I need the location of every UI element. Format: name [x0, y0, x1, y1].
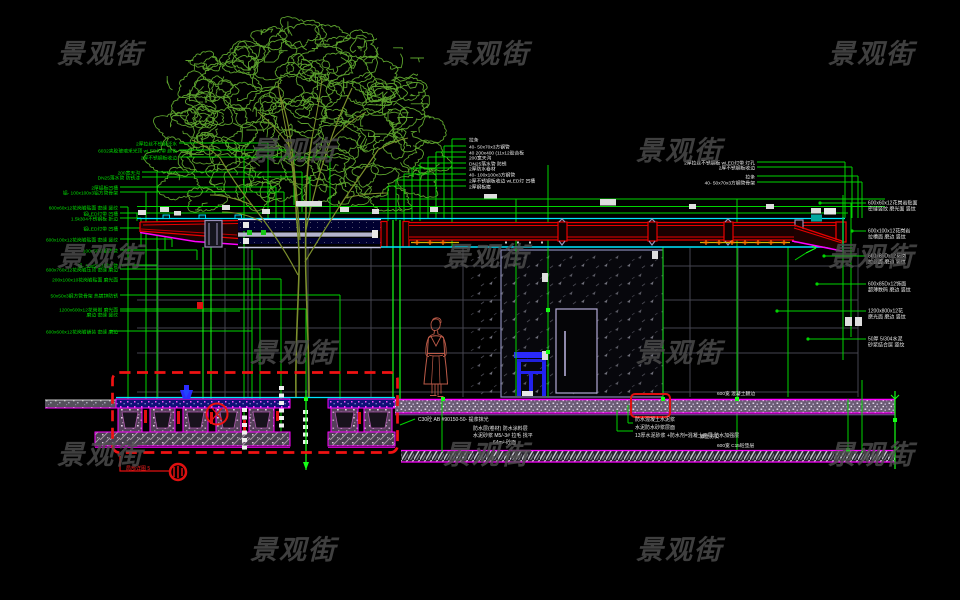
- svg-text:600x60x12花岗岩贴面: 600x60x12花岗岩贴面: [868, 200, 917, 207]
- svg-text:1200x800x12花: 1200x800x12花: [868, 308, 903, 315]
- svg-text:拉条: 拉条: [745, 174, 755, 181]
- svg-text:素土夯实: 素土夯实: [700, 433, 719, 440]
- svg-text:DN25落水管 防锈漆: DN25落水管 防锈漆: [98, 175, 141, 182]
- svg-text:50厚 5/304水泥: 50厚 5/304水泥: [868, 336, 902, 343]
- svg-text:防水混凝土水泥浆: 防水混凝土水泥浆: [635, 416, 675, 423]
- svg-text:2厚不锈钢板收边: 2厚不锈钢板收边: [141, 155, 177, 162]
- svg-text:铝- 100x100x3铝方管骨架: 铝- 100x100x3铝方管骨架: [63, 190, 118, 197]
- svg-text:40 200x400 (11x12胶合板: 40 200x400 (11x12胶合板: [469, 150, 524, 157]
- svg-text:600x60x12花岗岩贴面 密缝 竖纹: 600x60x12花岗岩贴面 密缝 竖纹: [49, 205, 119, 212]
- svg-text:超薄数码 磨边 竖纹: 超薄数码 磨边 竖纹: [868, 287, 911, 294]
- svg-text:1.5k304不锈钢板 折边: 1.5k304不锈钢板 折边: [71, 216, 118, 223]
- svg-text:40- 100x100x3方钢管: 40- 100x100x3方钢管: [469, 172, 515, 179]
- svg-text:C30砼 AB #90150-50- 提浆抹光: C30砼 AB #90150-50- 提浆抹光: [418, 416, 489, 423]
- svg-text:铝LED灯带 凹槽: 铝LED灯带 凹槽: [83, 211, 118, 218]
- svg-text:13厚水泥砂浆 +防水剂=混凝土面层 防水加强层: 13厚水泥砂浆 +防水剂=混凝土面层 防水加强层: [635, 432, 739, 439]
- svg-text:50x50x3钢方管骨架 热镀锌防锈: 50x50x3钢方管骨架 热镀锌防锈: [51, 293, 119, 300]
- svg-text:砂浆结合层 竖纹: 砂浆结合层 竖纹: [868, 342, 904, 349]
- svg-text:2厚防水卷材: 2厚防水卷材: [469, 166, 496, 173]
- svg-text:600宽 C15砼垫层: 600宽 C15砼垫层: [717, 442, 755, 449]
- svg-text:1200x600x12花岗岩 磨光面: 1200x600x12花岗岩 磨光面: [59, 307, 118, 314]
- svg-text:拉条: 拉条: [469, 137, 479, 144]
- svg-text:磨边 密缝 竖纹: 磨边 密缝 竖纹: [87, 312, 119, 319]
- svg-text:200宽天沟: 200宽天沟: [118, 170, 141, 177]
- svg-text:600x85Dx12饰面: 600x85Dx12饰面: [868, 281, 906, 288]
- svg-text:600x100x12花岗岩: 600x100x12花岗岩: [868, 228, 910, 235]
- svg-text:40- 50x70x3方钢管骨架: 40- 50x70x3方钢管骨架: [705, 180, 756, 187]
- svg-text:DN25落水管 防锈: DN25落水管 防锈: [469, 161, 507, 168]
- svg-text:2厚不锈钢板收边: 2厚不锈钢板收边: [719, 165, 755, 172]
- svg-text:铝LED灯带 凹槽: 铝LED灯带 凹槽: [83, 226, 118, 233]
- svg-text:防水层(卷材) 防水涂料层: 防水层(卷材) 防水涂料层: [473, 425, 528, 432]
- svg-text:密缝竖纹 磨光面 竖纹: 密缝竖纹 磨光面 竖纹: [868, 206, 916, 213]
- svg-text:6032夹胶玻璃采光顶 wLED灯带 颜色: 6032夹胶玻璃采光顶 wLED灯带 颜色: [98, 148, 177, 155]
- svg-text:600宽 混凝土翻边: 600宽 混凝土翻边: [717, 390, 755, 397]
- svg-text:磨光面 磨边 竖纹: 磨光面 磨边 竖纹: [868, 314, 906, 321]
- svg-text:2厚铝板凹槽: 2厚铝板凹槽: [91, 185, 118, 192]
- svg-text:水泥防水砂浆层面: 水泥防水砂浆层面: [635, 424, 675, 431]
- svg-text:2厚拉丝不锈钢泛水: 2厚拉丝不锈钢泛水: [136, 141, 177, 148]
- svg-text:40- 50x70x3方钢管: 40- 50x70x3方钢管: [469, 144, 510, 151]
- svg-text:600x600x12花岗岩铺装 密缝 磨边: 600x600x12花岗岩铺装 密缝 磨边: [46, 329, 118, 336]
- svg-text:200x100x10花岗岩贴面 磨光面: 200x100x10花岗岩贴面 磨光面: [52, 277, 118, 284]
- svg-text:200宽天沟: 200宽天沟: [469, 155, 492, 162]
- svg-text:2厚钢板箍: 2厚钢板箍: [469, 184, 491, 191]
- svg-text:2厚不锈钢板收边 wLED灯 凹槽: 2厚不锈钢板收边 wLED灯 凹槽: [469, 178, 535, 185]
